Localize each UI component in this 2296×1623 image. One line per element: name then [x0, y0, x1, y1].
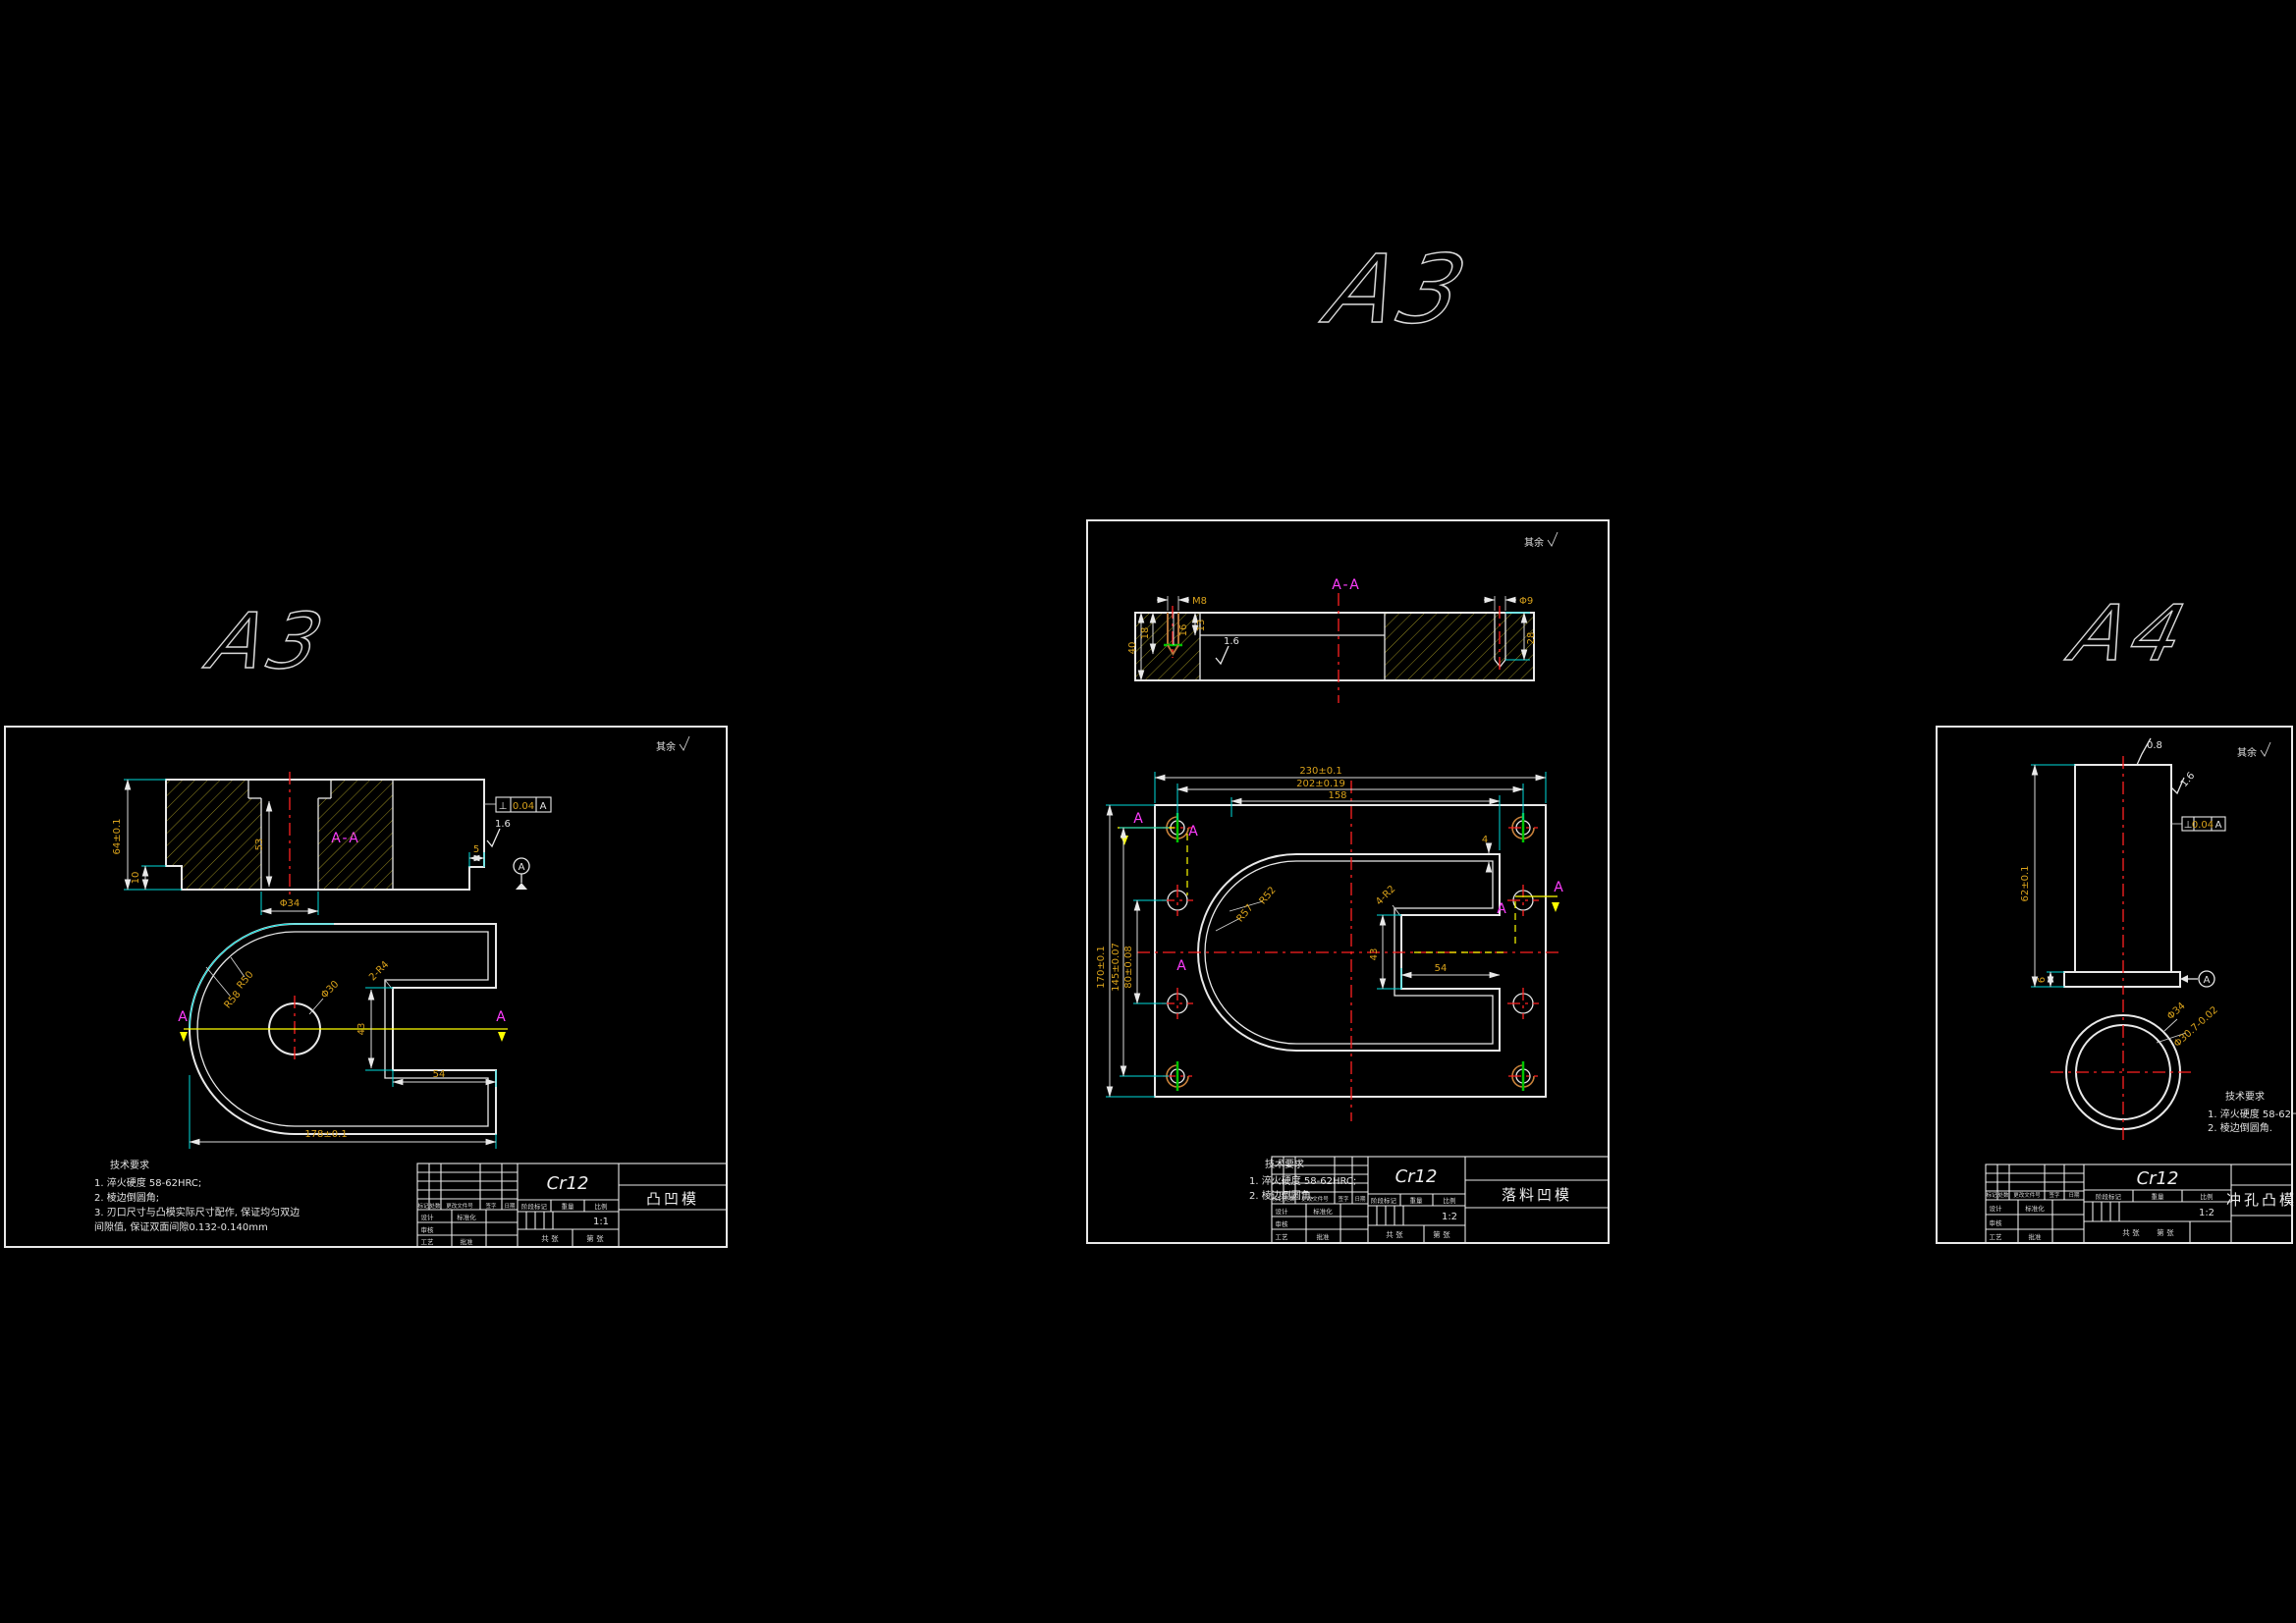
dim-plate-thick: 40: [1127, 642, 1138, 655]
dim-r-outer: R58: [223, 989, 244, 1010]
sheet3-tech-title: 技术要求: [2225, 1090, 2265, 1103]
tb-sign-label: 签字: [2049, 1191, 2060, 1199]
sheet1-section-view: 64±0.1 10 53 Φ34 5 ⊥ 0.04 A 1.6 A: [112, 772, 551, 915]
sheet1-roughness-icon: [487, 829, 500, 846]
plain-hole: [1507, 988, 1539, 1019]
sheet3-flange-outline: [2064, 972, 2180, 987]
tb-page-label: 第 张: [586, 1233, 604, 1243]
dim-r-inner: R52: [1258, 885, 1279, 906]
tb-mark-label: 标记: [1272, 1195, 1284, 1203]
sheet1-roughness-value: 1.6: [495, 819, 511, 830]
tb-page-label: 第 张: [2157, 1227, 2174, 1237]
dim-thread-depth: 16: [1178, 624, 1189, 637]
dim-width-holes: 202±0.19: [1296, 779, 1345, 789]
tb-stage-label: 阶段标记: [2096, 1192, 2122, 1201]
drawing-svg: A3 其余 A-A 64±0.1 10 53 Φ34 5: [0, 0, 2296, 1623]
cad-canvas: A3 其余 A-A 64±0.1 10 53 Φ34 5: [0, 0, 2296, 1623]
sheet1-scale-value: 1:1: [593, 1217, 609, 1227]
perp-tol: 0.04: [2192, 820, 2214, 831]
sheet3-border-frame: [1937, 727, 2292, 1243]
dim-thread: M8: [1192, 596, 1207, 607]
sheet2-tech-line-1: 1. 淬火硬度 58-62HRC;: [1249, 1174, 1356, 1187]
sheet2-roughness-value: 1.6: [1224, 636, 1239, 647]
sheet2-section-marker: A: [1133, 811, 1145, 827]
dim-land: 13: [1196, 620, 1207, 632]
tb-total-label: 共 张: [1386, 1230, 1403, 1239]
sheet1-section-marker-left: A: [178, 1009, 190, 1025]
sheet1-section-arrow-left: [180, 1032, 188, 1042]
sheet2-section-marker: A: [1176, 958, 1188, 974]
dim-height-inner: 80±0.08: [1123, 946, 1134, 988]
sheet2-plate-outline: [1155, 805, 1546, 1097]
sheet2-section-arrow-right: [1552, 902, 1559, 912]
sheet1-tech-requirements: 技术要求 1. 淬火硬度 58-62HRC; 2. 棱边倒圆角; 3. 刃口尺寸…: [94, 1159, 300, 1233]
sheet1-datum-letter: A: [519, 862, 525, 873]
sheet2-section-marker: A: [1554, 880, 1565, 895]
tb-weight-label: 重量: [562, 1203, 575, 1211]
tb-design-label: 设计: [1276, 1207, 1289, 1216]
tb-date-label: 日期: [2068, 1192, 2080, 1199]
sheet3-corner-roughness-icon: [2261, 742, 2270, 756]
dim-overall-width: 178±0.1: [304, 1129, 347, 1140]
sheet3-bottom-view: Φ34 Φ30.7-0.02: [2050, 1000, 2220, 1145]
sheet1-size-label: A3: [196, 596, 337, 686]
tb-std-label: 标准化: [1313, 1207, 1333, 1216]
tb-count-label: 处数: [1997, 1191, 2009, 1199]
tb-check-label: 审核: [1990, 1218, 2003, 1227]
dim-edge: 4: [1482, 835, 1488, 845]
sheet3-front-view: 62±0.1 6 0.8 1.6 ⊥ 0.04 A A: [2020, 738, 2225, 995]
tb-design-label: 设计: [421, 1213, 435, 1221]
tb-count-label: 处数: [429, 1202, 441, 1210]
tb-check-label: 审核: [421, 1225, 435, 1234]
sheet2-section-view: M8 40 18 16 13 1.6 Φ9 28: [1127, 593, 1537, 703]
sheet1-material: Cr12: [547, 1173, 589, 1194]
tb-std-label: 标准化: [2025, 1204, 2045, 1213]
sheet3-size-label: A4: [2058, 588, 2199, 678]
sheet1-part-name: 凸凹模: [646, 1190, 699, 1208]
dim-hole-dia: Φ34: [280, 898, 301, 909]
dim-center-hole: Φ30: [319, 979, 341, 1001]
tb-count-label: 处数: [1284, 1195, 1295, 1203]
perp-symbol: ⊥: [499, 801, 508, 812]
tb-weight-label: 重量: [2152, 1193, 2165, 1201]
sheet-left-a3: A3 其余 A-A 64±0.1 10 53 Φ34 5: [5, 596, 727, 1247]
sheet3-part-name: 冲孔凸模: [2226, 1191, 2296, 1209]
tb-design-label: 设计: [1990, 1204, 2003, 1213]
threaded-hole: [1508, 1061, 1538, 1091]
sheet2-title-block: Cr12 落料凹模 阶段标记 重量 比例 1:2 共 张 第 张 标记 处数 更…: [1272, 1157, 1609, 1243]
sheet2-section-arrow-left: [1121, 836, 1128, 845]
sheet3-tech-requirements: 技术要求 1. 淬火硬度 58-62HRC; 2. 棱边倒圆角.: [2208, 1090, 2296, 1134]
tb-scale-label: 比例: [1444, 1196, 1456, 1205]
tb-mark-label: 标记: [417, 1202, 429, 1210]
sheet2-tech-requirements: 技术要求 1. 淬火硬度 58-62HRC; 2. 棱边倒圆角.: [1249, 1158, 1356, 1202]
tb-change-label: 更改文件号: [1301, 1195, 1329, 1203]
dim-height-overall: 170±0.1: [1096, 946, 1107, 988]
tb-sign-label: 签字: [1338, 1195, 1349, 1203]
sheet2-corner-note: 其余: [1524, 536, 1544, 549]
sheet2-part-name: 落料凹模: [1502, 1186, 1572, 1204]
sheet2-corner-roughness-icon: [1548, 532, 1558, 546]
tb-sign-label: 签字: [485, 1202, 497, 1210]
tb-total-label: 共 张: [2122, 1228, 2140, 1237]
sheet-middle-a3: A3 其余 A-A M8 40 18 16 13 1.6: [1087, 235, 1609, 1243]
dim-height: 64±0.1: [112, 818, 123, 854]
dim-flange: 6: [2037, 977, 2048, 983]
sheet3-corner-note: 其余: [2237, 746, 2257, 759]
sheet2-section-marker: A: [1497, 901, 1508, 917]
sheet3-rough-side: 1.6: [2179, 771, 2198, 789]
tb-change-label: 更改文件号: [446, 1202, 473, 1210]
sheet1-tech-line-2: 2. 棱边倒圆角;: [94, 1191, 159, 1204]
tb-change-label: 更改文件号: [2013, 1191, 2041, 1199]
tb-process-label: 工艺: [1276, 1233, 1289, 1241]
plain-hole: [1507, 885, 1539, 916]
dim-slot-length: 54: [433, 1069, 446, 1080]
sheet1-datum-triangle: [516, 883, 527, 890]
tb-stage-label: 阶段标记: [1371, 1196, 1397, 1205]
sheet2-size-label: A3: [1312, 235, 1481, 344]
sheet1-section-arrow-right: [498, 1032, 506, 1042]
tb-std-label: 标准化: [457, 1213, 476, 1221]
sheet1-tech-line-1: 1. 淬火硬度 58-62HRC;: [94, 1176, 201, 1189]
sheet3-rough-top: 0.8: [2147, 740, 2162, 751]
sheet2-tech-title: 技术要求: [1265, 1158, 1304, 1170]
tb-approve-label: 批准: [2029, 1232, 2043, 1241]
tb-approve-label: 批准: [1317, 1232, 1331, 1241]
tb-total-label: 共 张: [541, 1234, 559, 1243]
tb-weight-label: 重量: [1410, 1197, 1424, 1205]
sheet3-title-block: Cr12 冲孔凸模 阶段标记 重量 比例 1:2 共 张 第 张 标记 处数 更…: [1986, 1164, 2296, 1243]
tb-date-label: 日期: [504, 1203, 516, 1210]
dim-slot-width: 43: [356, 1023, 367, 1036]
sheet2-roughness-icon: [1216, 646, 1229, 664]
dim-hole-depth: 53: [254, 839, 265, 851]
sheet1-tech-title: 技术要求: [110, 1159, 149, 1171]
sheet2-material: Cr12: [1395, 1166, 1438, 1187]
sheet3-datum-triangle: [2180, 975, 2188, 983]
dim-hole-depth2: 28: [1526, 632, 1537, 645]
tb-process-label: 工艺: [1990, 1233, 2003, 1241]
dim-hole-dia: Φ9: [1519, 596, 1533, 607]
dim-r-inner: R50: [236, 969, 256, 991]
sheet2-scale-value: 1:2: [1442, 1212, 1457, 1222]
sheet2-section-marker: A: [1188, 824, 1200, 839]
sheet3-material: Cr12: [2137, 1168, 2179, 1189]
dim-height: 62±0.1: [2020, 865, 2031, 901]
dim-slot-length: 54: [1435, 963, 1448, 974]
sheet1-section-marker-right: A: [496, 1009, 508, 1025]
dim-width-inner: 158: [1328, 790, 1346, 801]
dim-notch-r: 4-R2: [1374, 884, 1397, 907]
dim-hole-depth: 18: [1140, 627, 1151, 640]
tb-page-label: 第 张: [1433, 1229, 1450, 1239]
tb-process-label: 工艺: [421, 1238, 435, 1246]
perp-datum: A: [2215, 820, 2222, 831]
tb-date-label: 日期: [1354, 1196, 1366, 1203]
dim-slot-width: 43: [1369, 948, 1380, 961]
tb-check-label: 审核: [1276, 1219, 1289, 1228]
sheet1-tech-line-3: 3. 刃口尺寸与凸模实际尺寸配作, 保证均匀双边: [94, 1206, 300, 1218]
tb-scale-label: 比例: [595, 1202, 608, 1211]
tb-mark-label: 标记: [1986, 1191, 1997, 1199]
dim-r-outer: R57: [1235, 902, 1256, 924]
dim-width-overall: 230±0.1: [1299, 766, 1341, 777]
dim-step-left: 10: [131, 872, 141, 885]
sheet3-scale-value: 1:2: [2199, 1208, 2214, 1218]
sheet-right-a4: A4 其余 62±0.1 6 0.8 1.6 ⊥ 0.04 A A: [1937, 588, 2296, 1243]
dim-outer-dia: Φ34: [2165, 1001, 2188, 1022]
sheet3-datum-letter: A: [2204, 975, 2211, 986]
sheet2-section-title: A-A: [1332, 577, 1361, 593]
sheet3-tech-line-2: 2. 棱边倒圆角.: [2208, 1121, 2272, 1134]
perp-datum: A: [540, 801, 547, 812]
sheet1-plan-view: A A R50 R58 Φ30 2-R4 43 54 178±0.1: [178, 924, 508, 1149]
dim-step-right: 5: [473, 844, 479, 855]
sheet1-corner-note: 其余: [656, 740, 676, 753]
sheet1-title-block: Cr12 凸凹模 阶段标记 重量 比例 1:1 共 张 第 张 标记 处数 更改…: [417, 1163, 727, 1247]
sheet3-tech-line-1: 1. 淬火硬度 58-62HRC;: [2208, 1108, 2296, 1120]
tb-stage-label: 阶段标记: [521, 1202, 548, 1211]
sheet1-tech-line-4: 间隙值, 保证双面间隙0.132-0.140mm: [94, 1220, 268, 1233]
dim-height-holes: 145±0.07: [1111, 943, 1121, 992]
perp-tol: 0.04: [513, 801, 534, 812]
sheet2-plan-view: A A A A A 230±0.1 202±0.19 158 170±0.1 1…: [1096, 766, 1565, 1121]
tb-scale-label: 比例: [2201, 1192, 2214, 1201]
tb-approve-label: 批准: [461, 1237, 474, 1246]
sheet1-corner-roughness-icon: [680, 736, 689, 750]
